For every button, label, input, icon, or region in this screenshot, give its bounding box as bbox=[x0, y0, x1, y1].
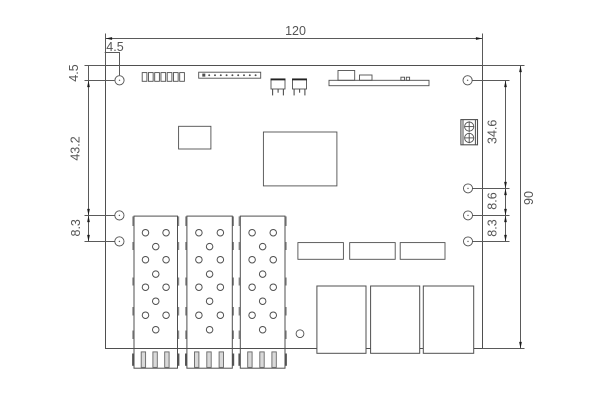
svg-text:120: 120 bbox=[285, 24, 306, 38]
svg-text:4.5: 4.5 bbox=[106, 40, 123, 54]
svg-text:8.6: 8.6 bbox=[485, 192, 499, 209]
svg-text:90: 90 bbox=[522, 191, 536, 205]
svg-text:4.5: 4.5 bbox=[67, 64, 81, 81]
svg-text:34.6: 34.6 bbox=[486, 120, 500, 144]
svg-text:43.2: 43.2 bbox=[69, 136, 83, 160]
svg-text:8.3: 8.3 bbox=[485, 219, 499, 236]
svg-text:8.3: 8.3 bbox=[69, 219, 83, 236]
